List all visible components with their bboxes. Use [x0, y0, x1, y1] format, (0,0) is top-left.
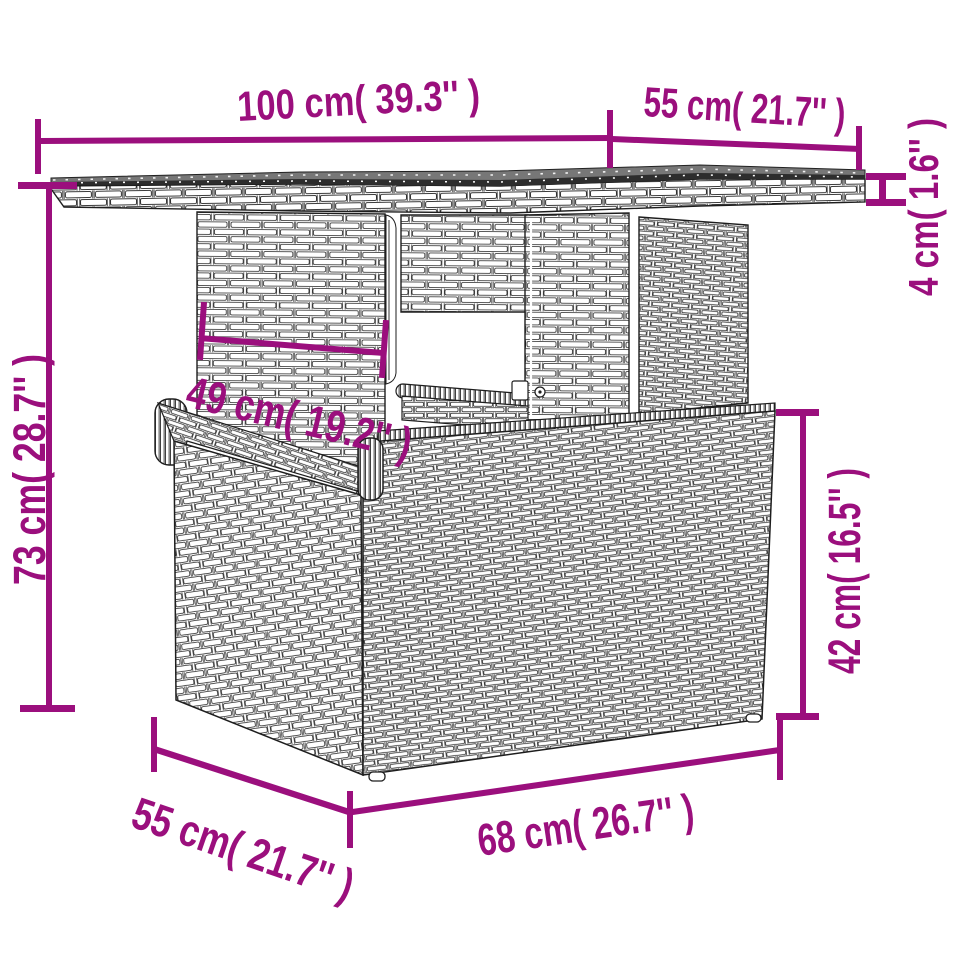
svg-text:73 cm( 28.7'' ): 73 cm( 28.7'' ): [4, 354, 55, 585]
svg-text:4 cm( 1.6'' ): 4 cm( 1.6'' ): [900, 118, 947, 296]
svg-text:42 cm( 16.5'' ): 42 cm( 16.5'' ): [819, 468, 870, 674]
